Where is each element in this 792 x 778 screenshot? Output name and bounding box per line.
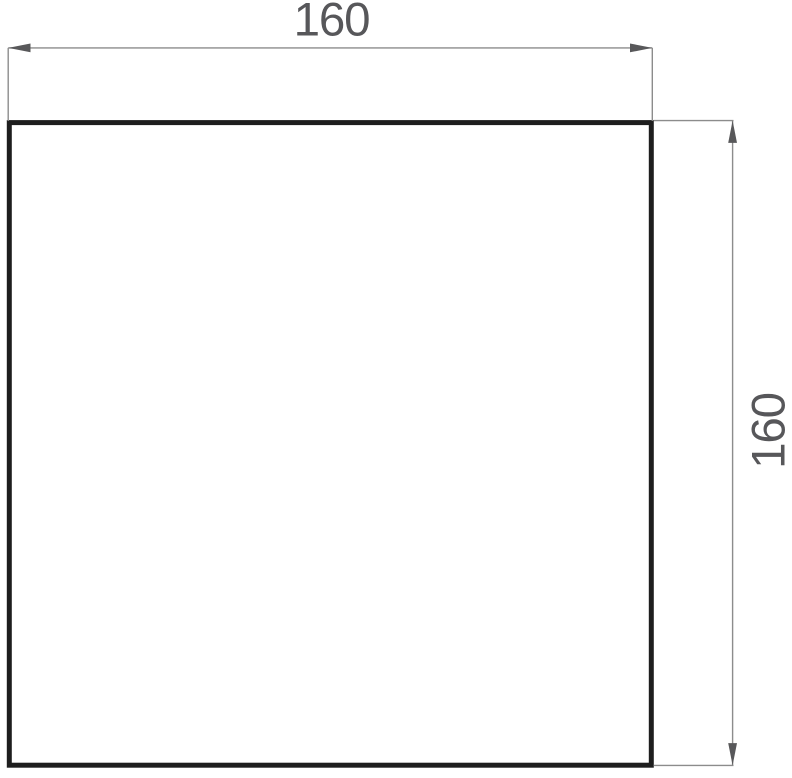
svg-text:160: 160 <box>743 393 792 469</box>
svg-text:160: 160 <box>294 0 370 47</box>
